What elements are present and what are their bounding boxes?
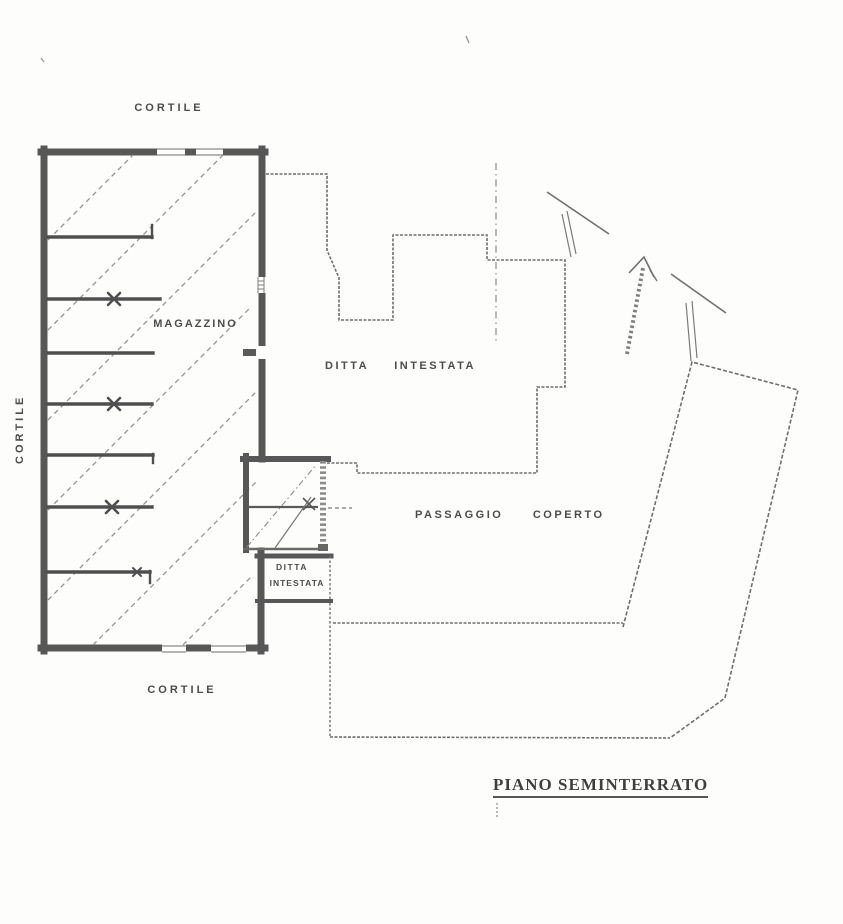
floor-plan-page: CORTILE CORTILE CORTILE MAGAZZINO DITTA … (0, 0, 843, 924)
magazzino-wall-openings (157, 146, 268, 654)
floor-title: PIANO SEMINTERRATO (493, 775, 708, 798)
label-cortile-bottom: CORTILE (146, 684, 218, 696)
middle-building-outline (266, 174, 565, 473)
label-small-room-intestata: INTESTATA (265, 578, 329, 588)
magazzino-shelf-lines (48, 225, 160, 583)
small-room-1 (243, 456, 352, 551)
label-small-room-ditta: DITTA (271, 562, 313, 572)
label-magazzino: MAGAZZINO (148, 318, 243, 330)
passage-lines (330, 603, 670, 738)
entrance-arrow-icon (627, 257, 657, 354)
label-ditta-intestata: DITTA INTESTATA (325, 360, 476, 372)
right-building-outline (623, 362, 798, 738)
scan-noise (41, 36, 469, 62)
column-x-markers (106, 293, 141, 576)
label-cortile-top: CORTILE (133, 102, 205, 114)
door-jamb-mark (243, 349, 256, 356)
label-passaggio-coperto: PASSAGGIO COPERTO (415, 509, 605, 521)
floor-plan-drawing (0, 0, 843, 924)
connector-walls (562, 211, 697, 361)
label-cortile-left: CORTILE (14, 404, 26, 464)
